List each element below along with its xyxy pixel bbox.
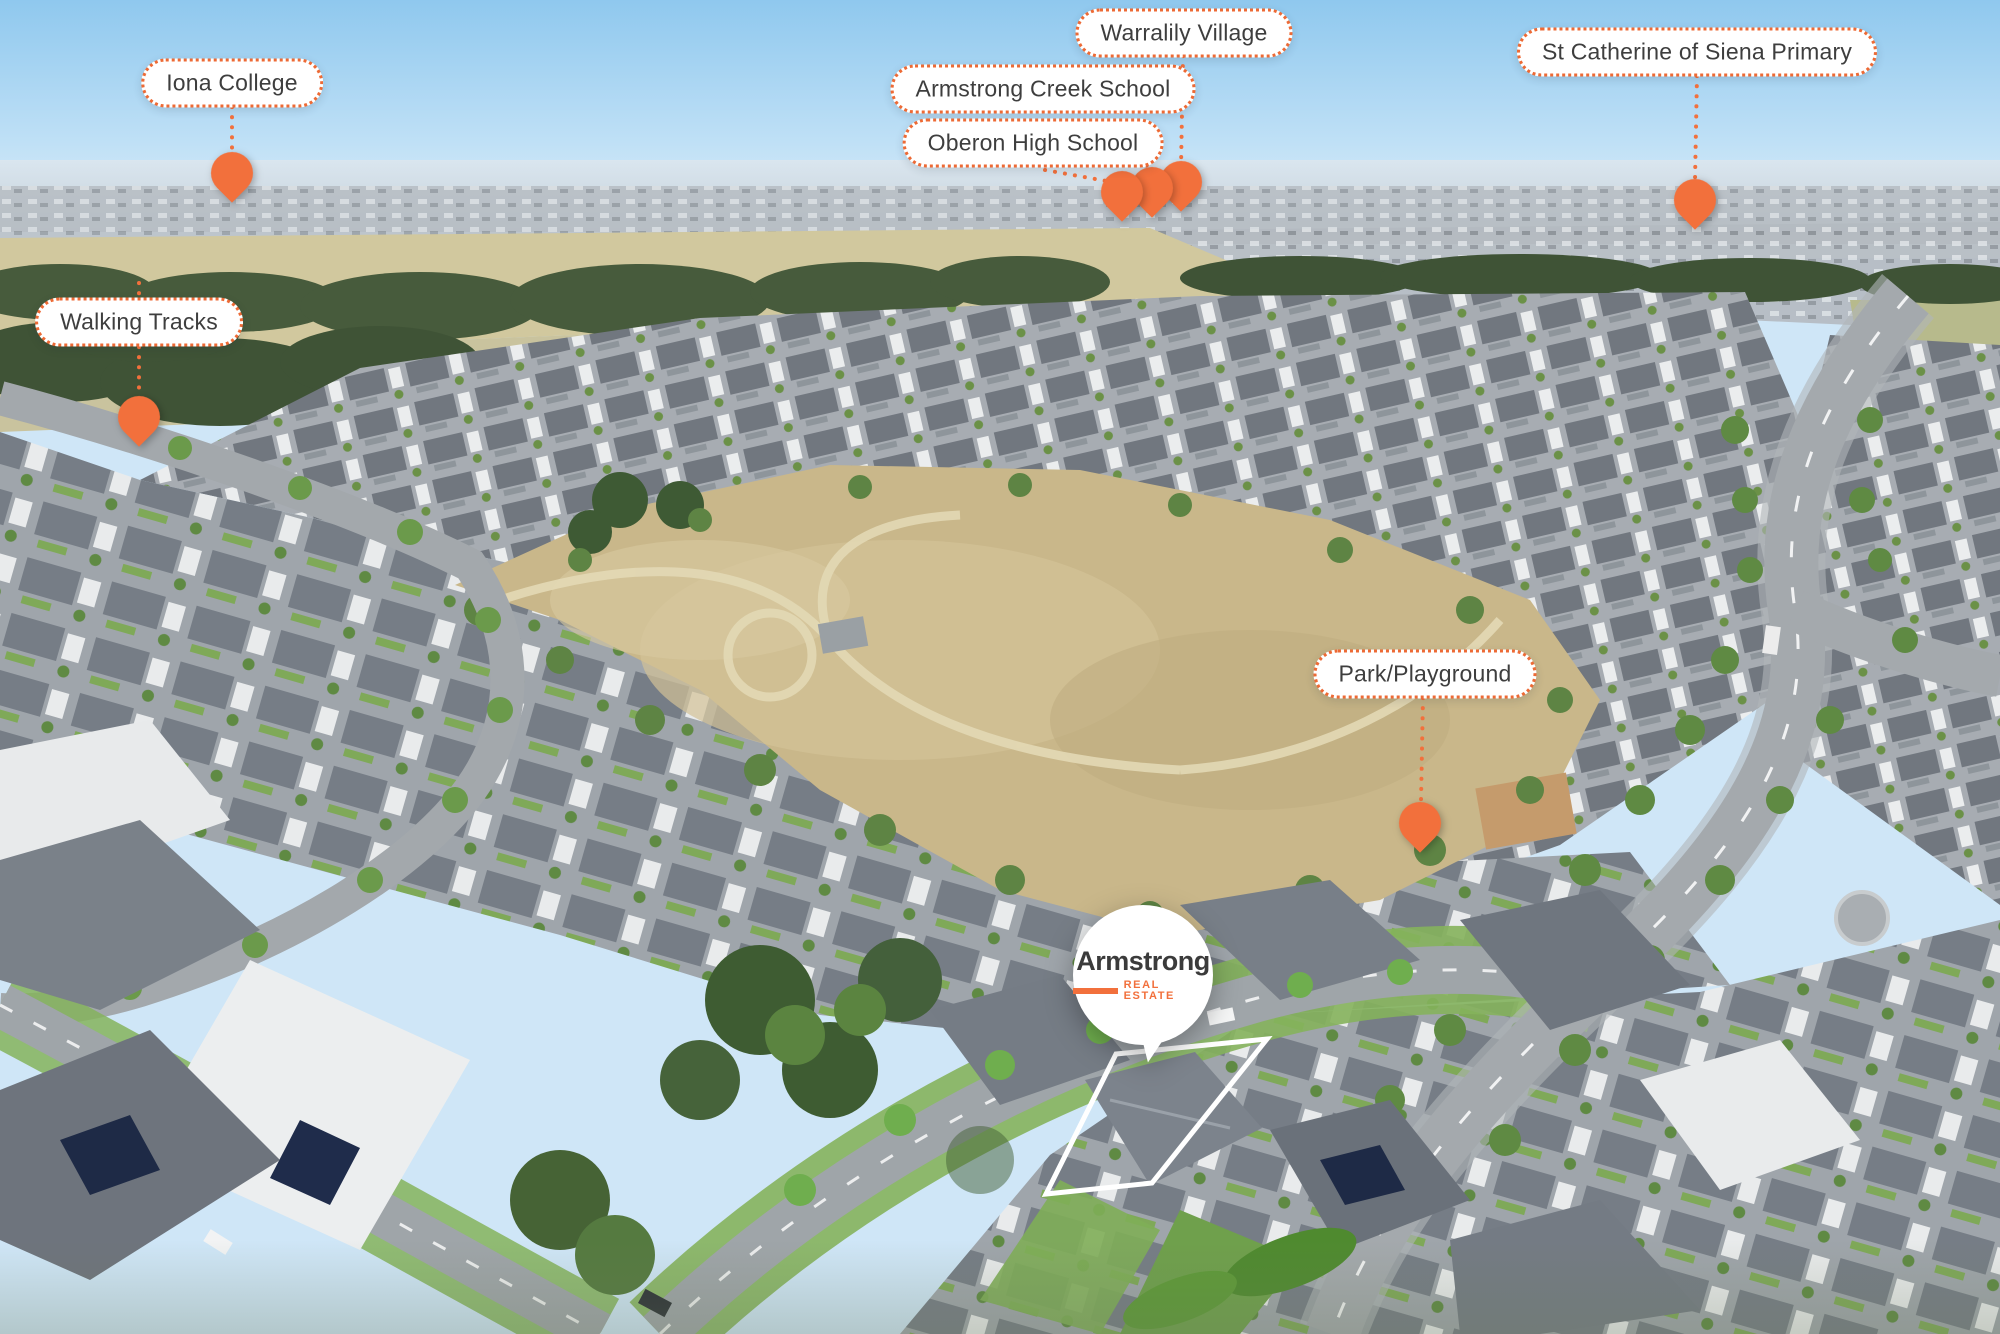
brand-tagline: REAL ESTATE [1124, 980, 1213, 1002]
label-walking-tracks: Walking Tracks [35, 298, 243, 347]
label-iona-college: Iona College [141, 59, 323, 108]
brand-map-pin: Armstrong REAL ESTATE [1073, 905, 1213, 1045]
label-warralily-village: Warralily Village [1075, 9, 1292, 58]
label-armstrong-creek-school: Armstrong Creek School [891, 65, 1196, 114]
label-park-playground: Park/Playground [1313, 650, 1536, 699]
brand-name: Armstrong [1076, 948, 1210, 975]
brand-map-pin-bulb: Armstrong REAL ESTATE [1073, 905, 1213, 1045]
label-st-catherine-primary: St Catherine of Siena Primary [1517, 28, 1877, 77]
label-oberon-high-school: Oberon High School [903, 119, 1164, 168]
brand-logo-bar [1073, 988, 1118, 994]
aerial-photo: Iona College Walking Tracks Armstrong Cr… [0, 0, 2000, 1334]
